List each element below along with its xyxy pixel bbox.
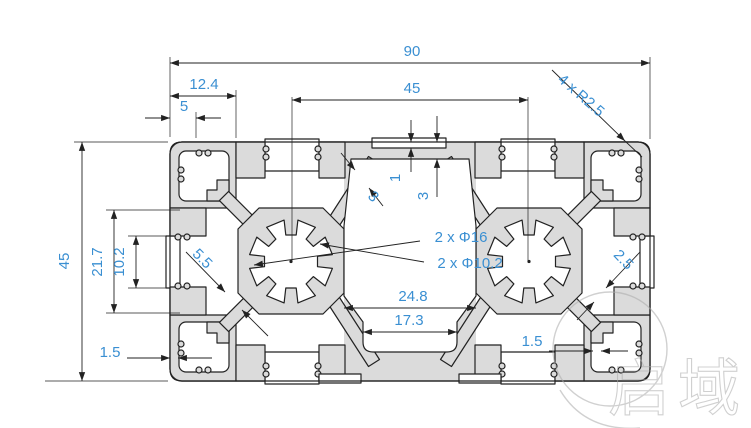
dim-overall-height: 45 [56, 142, 82, 381]
dim-corner-radius-label: 4 x R2.5 [554, 71, 607, 120]
bottom-face-step-left [319, 374, 361, 383]
dim-wall-right-label: 1.5 [522, 333, 543, 350]
profile-cross-section [166, 138, 654, 384]
dim-overall-width: 90 [170, 43, 650, 63]
bottom-face-step-right [459, 374, 501, 383]
dim-corner-block: 12.4 [170, 76, 236, 96]
dim-top-wall-label: 3 [415, 192, 432, 200]
dim-overall-height-label: 45 [56, 253, 73, 270]
dim-slot-opening: 10.2 [111, 236, 136, 288]
dim-bore-outer-label: 2 x Φ16 [435, 229, 488, 246]
dim-wall-left-label: 1.5 [100, 344, 121, 361]
dim-bore-distance: 45 [292, 80, 528, 100]
dim-edge-tab-label: 5 [180, 98, 188, 115]
profile-technical-drawing: 90 12.4 5 45 4 x R2.5 1 [0, 0, 751, 428]
drawing-canvas: 90 12.4 5 45 4 x R2.5 1 [0, 0, 751, 428]
dim-overall-width-label: 90 [404, 43, 421, 60]
dim-edge-tab: 5 [145, 98, 221, 118]
top-face-step [372, 138, 446, 148]
dim-channel-opening-label: 17.3 [394, 312, 423, 329]
dim-bore-distance-label: 45 [404, 80, 421, 97]
dim-channel-width-label: 24.8 [398, 288, 427, 305]
dim-slot-opening-label: 10.2 [111, 247, 128, 276]
dim-corner-block-label: 12.4 [189, 76, 218, 93]
watermark-text: 启域 [608, 355, 748, 424]
core-boss [238, 208, 344, 314]
dim-face-step-label: 1 [387, 174, 404, 182]
dim-slot-chamber-label: 21.7 [89, 247, 106, 276]
dim-bore-inner-label: 2 x Φ10.2 [437, 255, 502, 272]
